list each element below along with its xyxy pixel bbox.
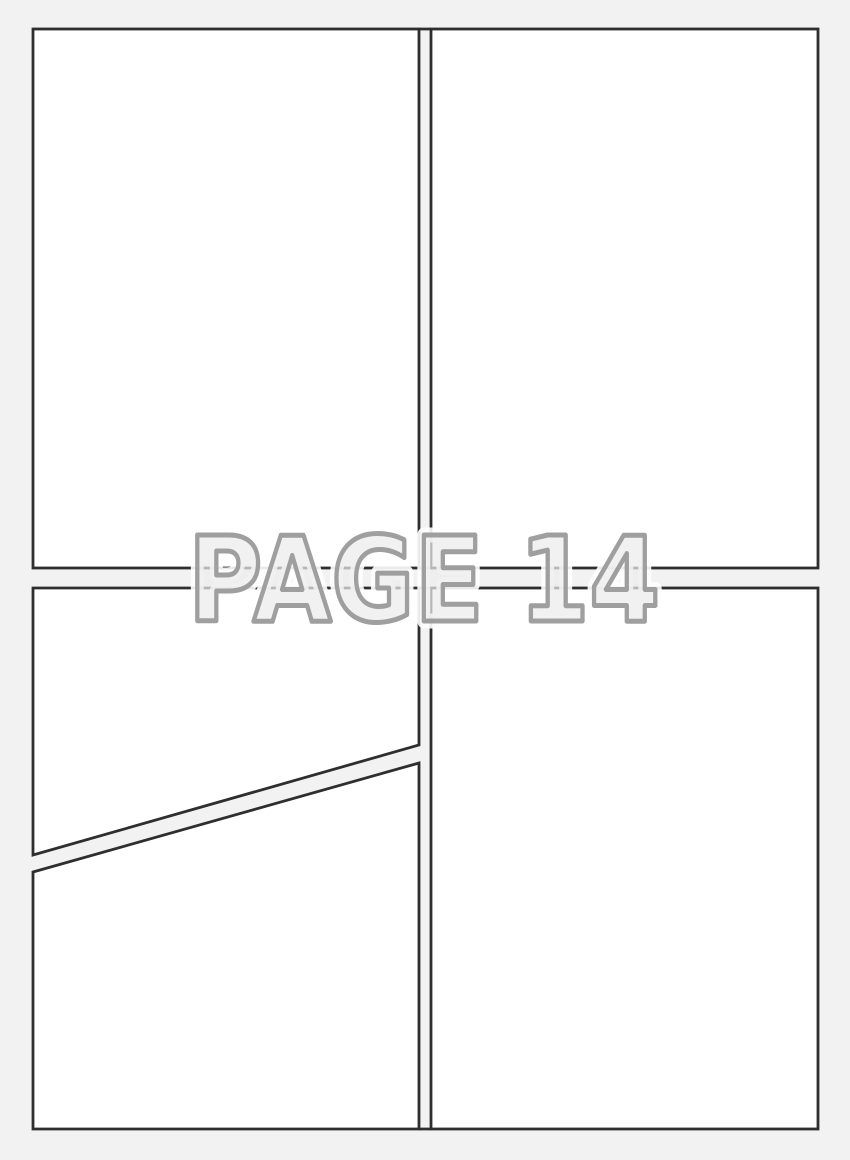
panel-top-right bbox=[431, 29, 818, 568]
page-number-label: PAGE 14 bbox=[188, 511, 660, 649]
panel-top-left bbox=[33, 29, 419, 568]
comic-panels-canvas: PAGE 14 PAGE 14 bbox=[0, 0, 850, 1160]
comic-template-page: PAGE 14 PAGE 14 bbox=[0, 0, 850, 1160]
panel-bottom-right bbox=[431, 588, 818, 1129]
